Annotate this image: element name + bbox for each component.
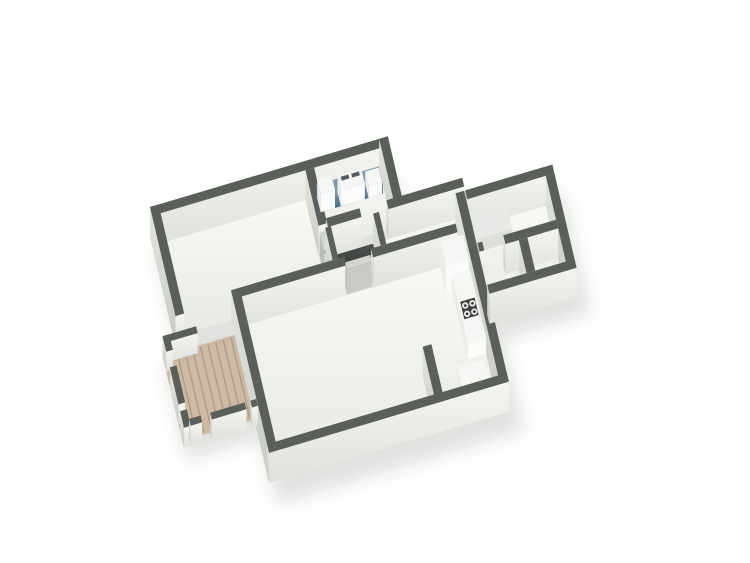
stove-burner-center-1 — [464, 304, 467, 307]
stove-burner-center-4 — [473, 310, 476, 313]
deck-rail-south-c-south-face — [252, 406, 258, 428]
floorplan-page — [0, 0, 750, 563]
deck-rail-south-a-south-face — [191, 422, 203, 446]
floorplan-3d-render — [0, 0, 750, 563]
stove-burner-center-2 — [471, 302, 474, 305]
stove-burner-center-3 — [466, 313, 469, 316]
